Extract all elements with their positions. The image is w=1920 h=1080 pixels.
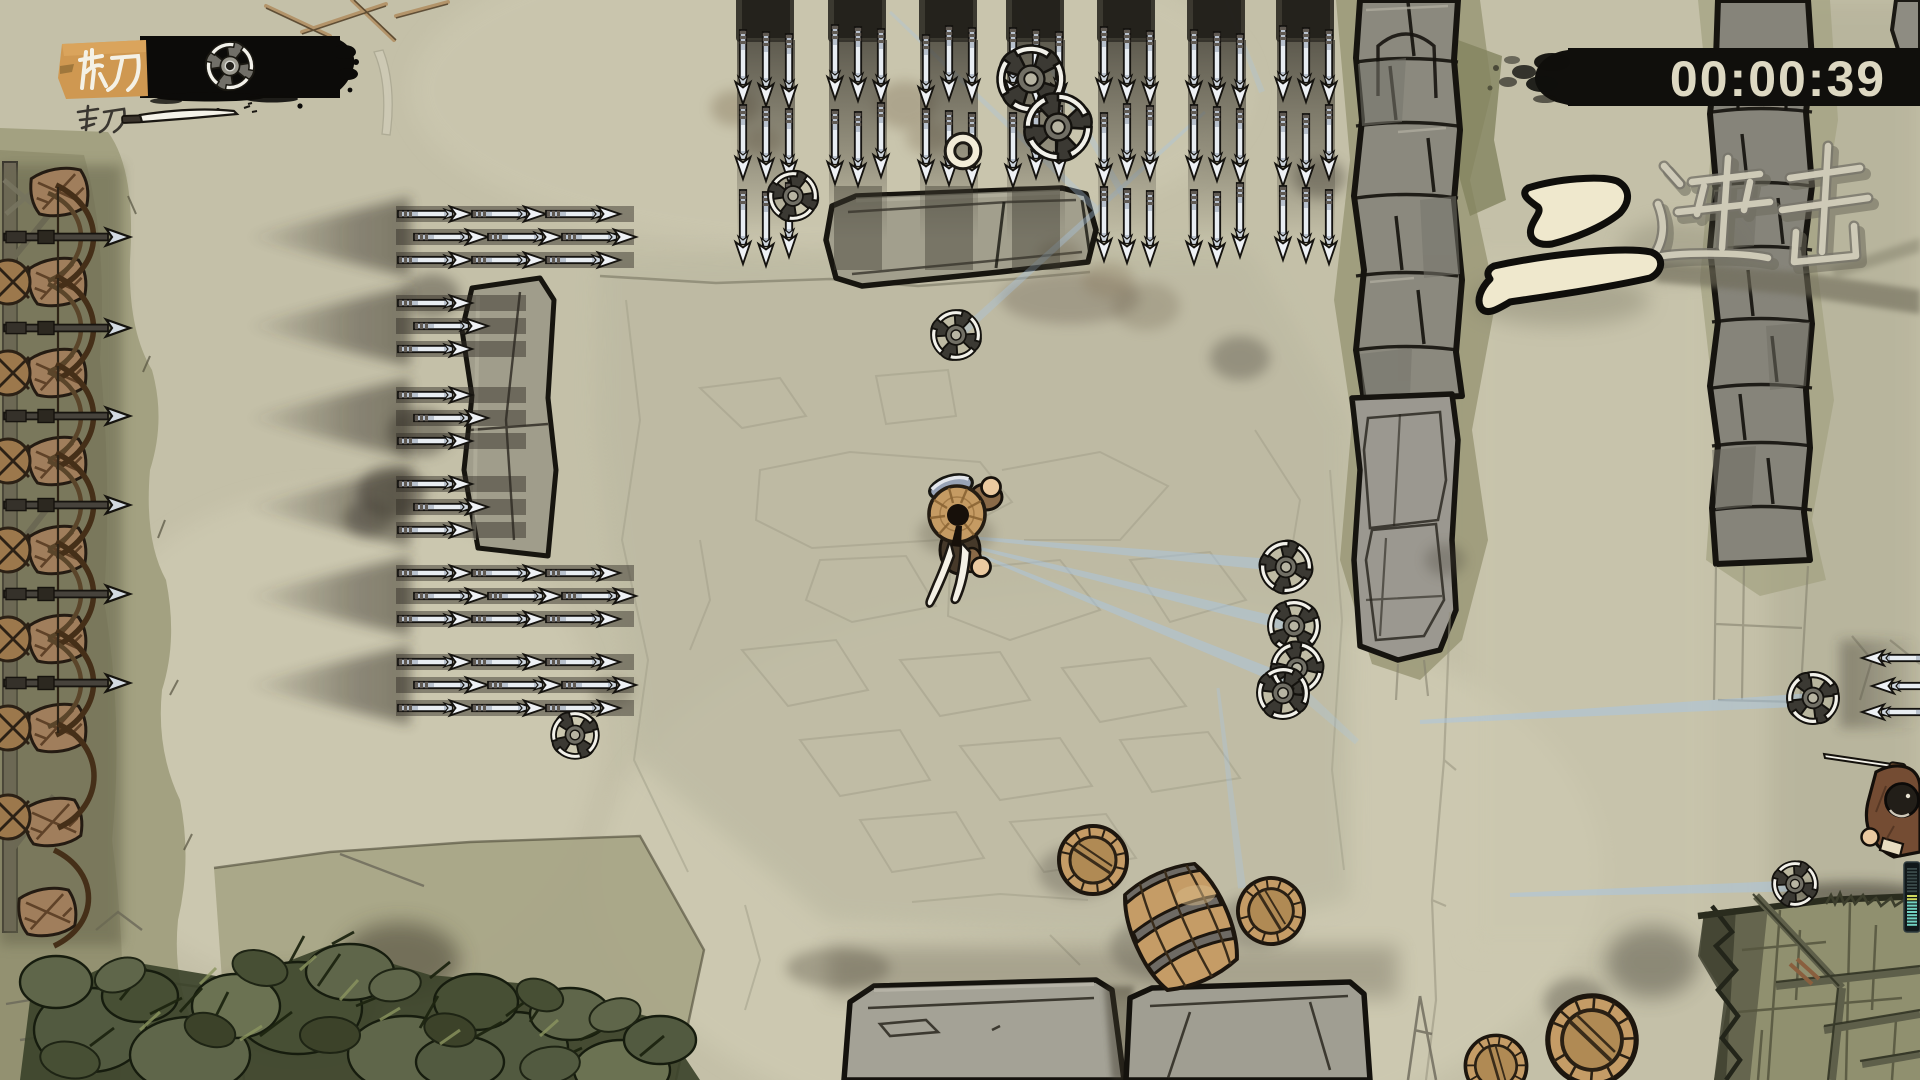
svg-text:00:00:39: 00:00:39 <box>1670 51 1886 107</box>
